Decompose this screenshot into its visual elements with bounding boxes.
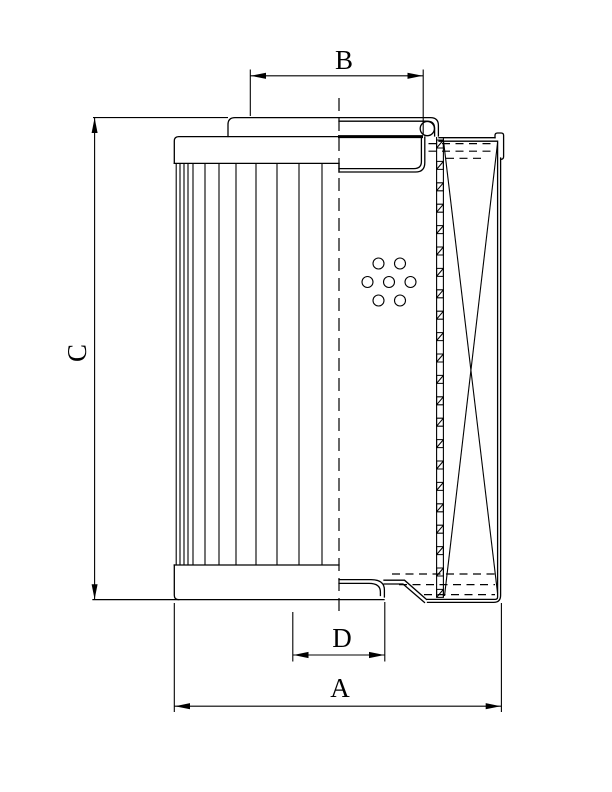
top-spigot xyxy=(228,118,438,137)
dimension-b-label: B xyxy=(335,45,353,75)
dimension-c-label: C xyxy=(62,344,92,362)
arrowhead-right xyxy=(369,652,384,658)
arrowhead-left xyxy=(293,652,308,658)
arrowhead-right xyxy=(408,73,423,79)
bottom-end-cap xyxy=(93,565,384,600)
dimension-d-label: D xyxy=(332,623,352,653)
media-cross-pattern xyxy=(443,140,497,596)
shell-funnel xyxy=(384,580,427,599)
drawing-page: B C D A xyxy=(0,0,612,792)
dimension-c: C xyxy=(62,118,228,600)
o-ring xyxy=(420,122,434,136)
perforation-holes xyxy=(362,258,416,306)
pleated-media xyxy=(176,163,322,565)
core-tube xyxy=(437,137,444,597)
dimension-a-label: A xyxy=(330,673,350,703)
arrowhead-right xyxy=(486,703,501,709)
arrowhead-up xyxy=(92,118,98,133)
dimension-a: A xyxy=(174,603,501,712)
core-tube-hatch xyxy=(437,140,444,597)
arrowhead-down xyxy=(92,584,98,599)
drawing-canvas: B C D A xyxy=(0,0,612,792)
arrowhead-left xyxy=(251,73,266,79)
arrowhead-left xyxy=(175,703,190,709)
